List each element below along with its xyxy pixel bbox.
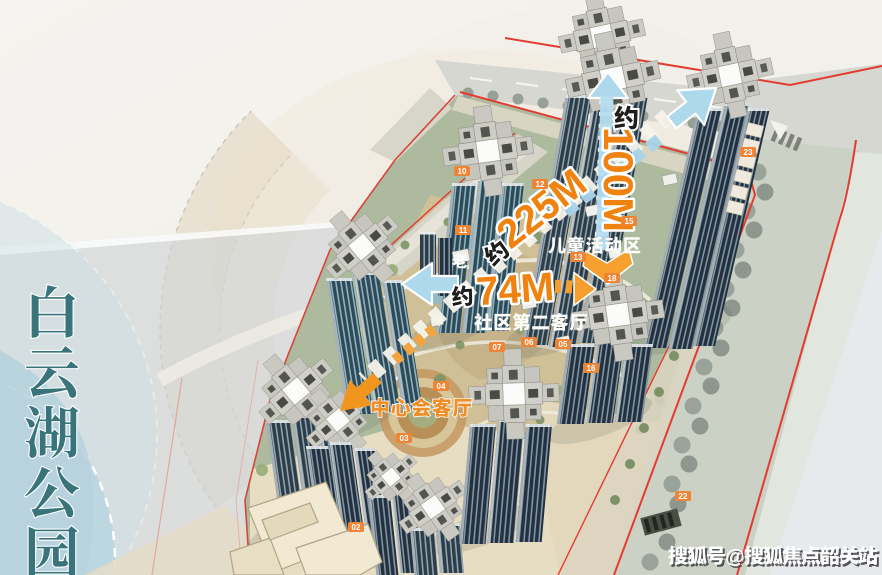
svg-text:05: 05 (559, 340, 568, 349)
svg-text:15: 15 (625, 217, 634, 226)
svg-text:18: 18 (608, 274, 617, 283)
svg-text:74M: 74M (475, 265, 556, 314)
svg-text:@: @ (725, 546, 745, 568)
svg-text:23: 23 (744, 148, 753, 157)
svg-text:06: 06 (525, 338, 534, 347)
svg-text:11: 11 (459, 226, 468, 235)
svg-text:12: 12 (536, 180, 545, 189)
svg-text:04: 04 (437, 382, 446, 391)
svg-text:13: 13 (574, 253, 583, 262)
svg-text:03: 03 (400, 434, 409, 443)
svg-text:22: 22 (679, 492, 688, 501)
svg-text:10: 10 (458, 167, 467, 176)
svg-text:07: 07 (493, 343, 502, 352)
svg-text:02: 02 (352, 523, 361, 532)
svg-text:16: 16 (587, 364, 596, 373)
